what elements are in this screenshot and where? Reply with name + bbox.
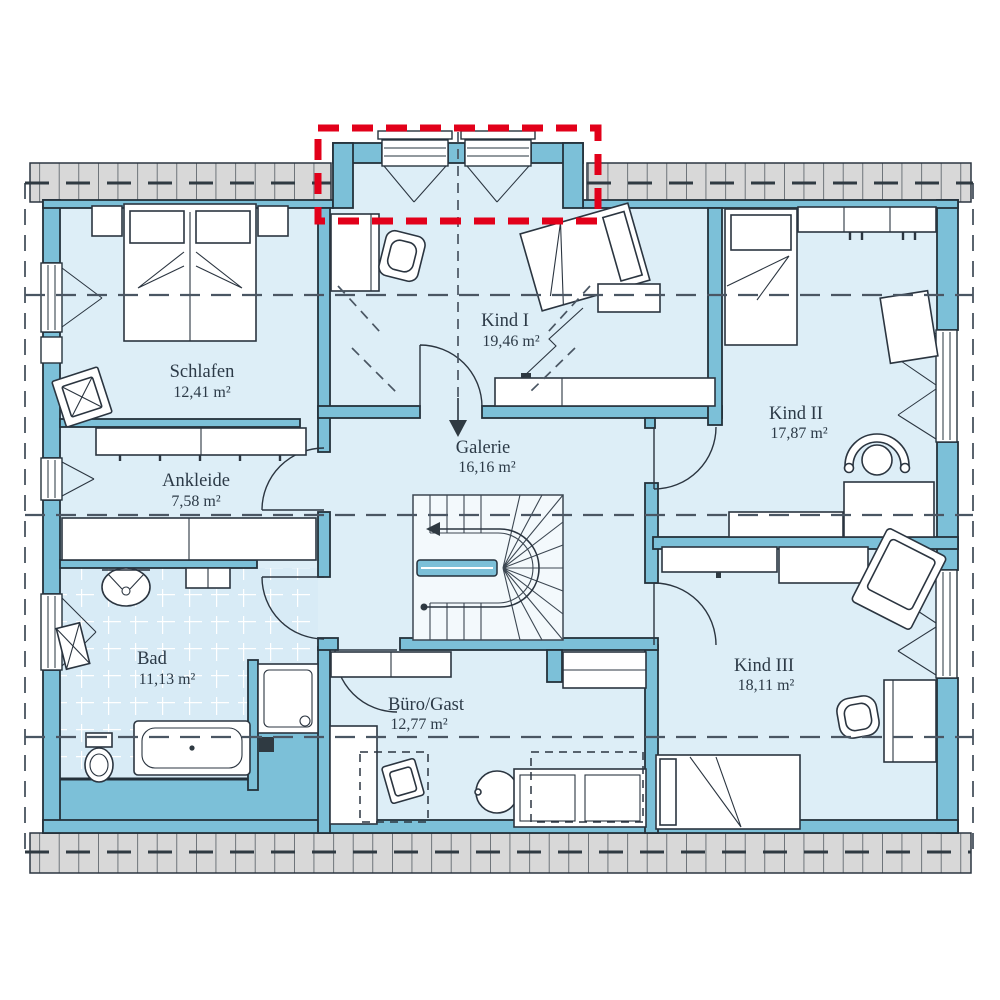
pillow (196, 211, 250, 243)
stair-railing (417, 560, 497, 576)
nightstand-right (258, 206, 288, 236)
room-label-bad: Bad (137, 649, 168, 669)
roof-hatch-band-bottom (25, 833, 971, 873)
room-label-kind-3: Kind III (734, 656, 794, 676)
washbasin (102, 568, 150, 606)
side-table (880, 291, 938, 364)
shower (258, 664, 318, 733)
pillow (130, 211, 184, 243)
desk (330, 726, 377, 824)
room-area-ankleide: 7,58 m² (171, 493, 220, 510)
desk-right (884, 680, 936, 762)
desk-chair (835, 694, 881, 740)
shelf (598, 284, 660, 312)
room-area-schlafen: 12,41 m² (173, 384, 230, 401)
room-label-ankleide: Ankleide (162, 471, 230, 491)
desk (331, 214, 379, 291)
bathtub (134, 721, 250, 775)
room-area-kind-1: 19,46 m² (482, 333, 539, 350)
floor-plan-drawing: Schlafen 12,41 m² Ankleide 7,58 m² Bad 1… (0, 0, 1000, 1000)
bath-cabinet (186, 568, 230, 588)
duct-block (259, 737, 274, 752)
bed (725, 209, 797, 345)
room-area-kind-3: 18,11 m² (738, 677, 795, 694)
wardrobe-bottom (62, 518, 316, 560)
room-area-buero-gast: 12,77 m² (390, 716, 447, 733)
room-label-buero-gast: Büro/Gast (388, 695, 465, 715)
room-label-kind-2: Kind II (769, 404, 823, 424)
room-label-galerie: Galerie (456, 438, 510, 458)
floor-plan-page: Schlafen 12,41 m² Ankleide 7,58 m² Bad 1… (0, 0, 1000, 1000)
room-area-galerie: 16,16 m² (458, 459, 515, 476)
round-table (475, 771, 518, 813)
nightstand-left (92, 206, 122, 236)
headboard (660, 759, 676, 825)
toilet (85, 733, 113, 782)
pillow (731, 215, 791, 250)
sideboard (495, 373, 715, 406)
window-niche (41, 337, 62, 363)
room-area-kind-2: 17,87 m² (770, 425, 827, 442)
cabinet-top-left (331, 652, 451, 677)
double-bed (124, 204, 256, 341)
bed (656, 755, 800, 829)
room-label-kind-1: Kind I (481, 311, 529, 331)
desk-top (779, 547, 868, 583)
staircase (413, 495, 563, 640)
room-label-schlafen: Schlafen (170, 362, 235, 382)
cabinet-top-right (563, 652, 646, 688)
room-area-bad: 11,13 m² (139, 671, 196, 688)
